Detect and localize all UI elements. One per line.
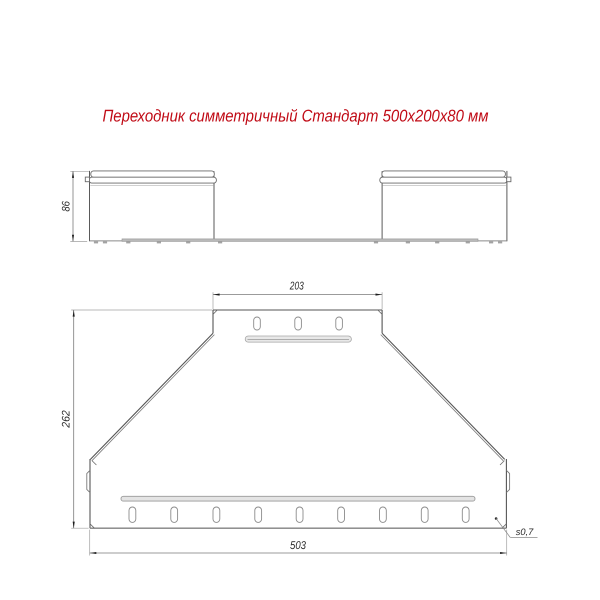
svg-text:s0,7: s0,7 bbox=[516, 526, 534, 537]
svg-text:503: 503 bbox=[290, 540, 307, 552]
svg-text:262: 262 bbox=[61, 410, 73, 428]
svg-text:Переходник симметричный Станда: Переходник симметричный Стандарт 500х200… bbox=[103, 107, 489, 126]
svg-text:86: 86 bbox=[61, 200, 73, 211]
svg-text:203: 203 bbox=[289, 281, 304, 293]
